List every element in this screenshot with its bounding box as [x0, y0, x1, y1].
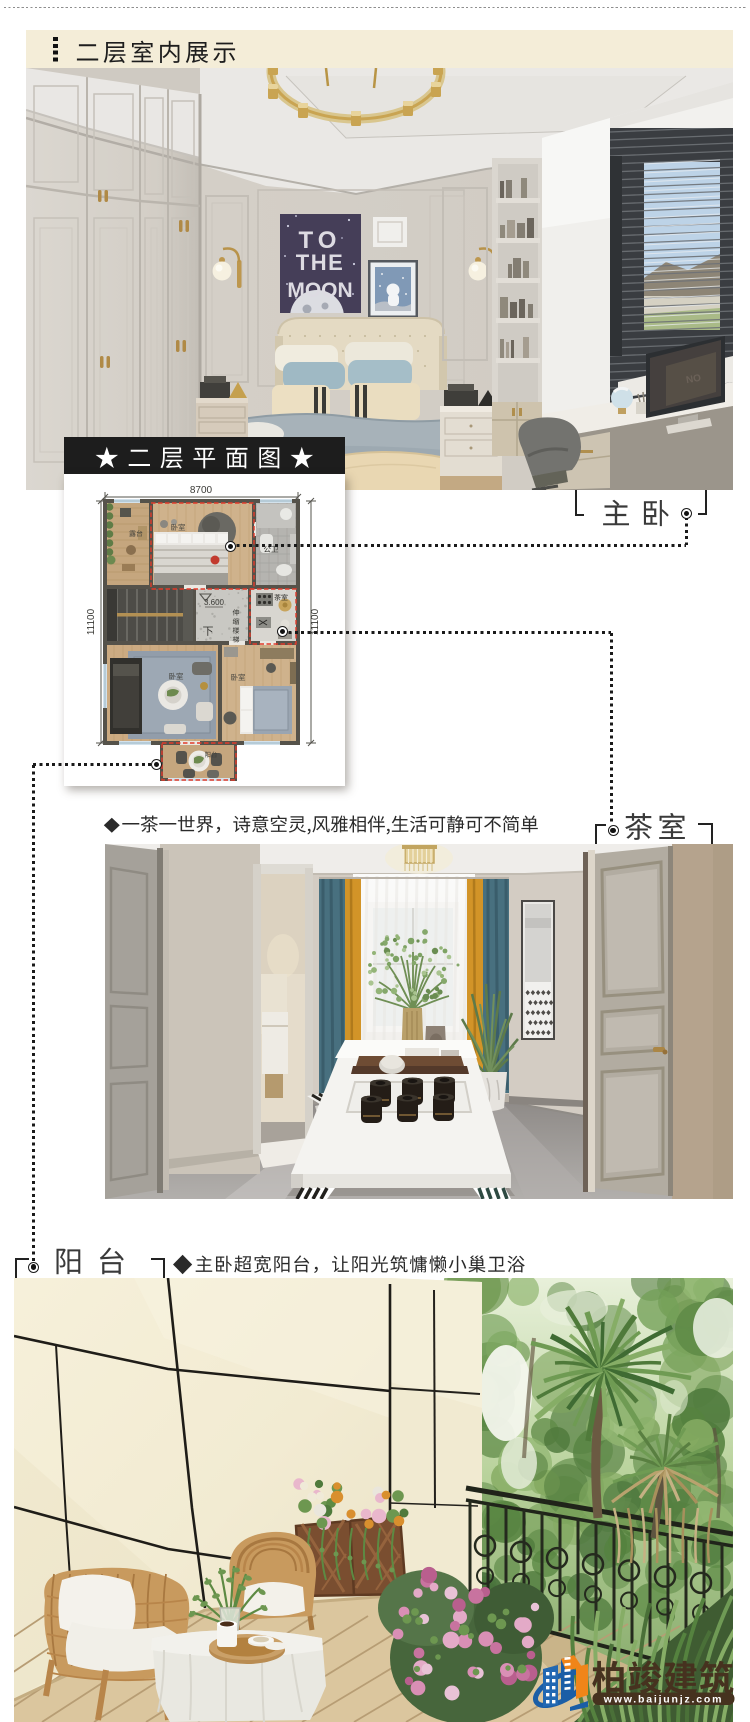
svg-text:www.baijunjz.com: www.baijunjz.com — [603, 1694, 723, 1706]
